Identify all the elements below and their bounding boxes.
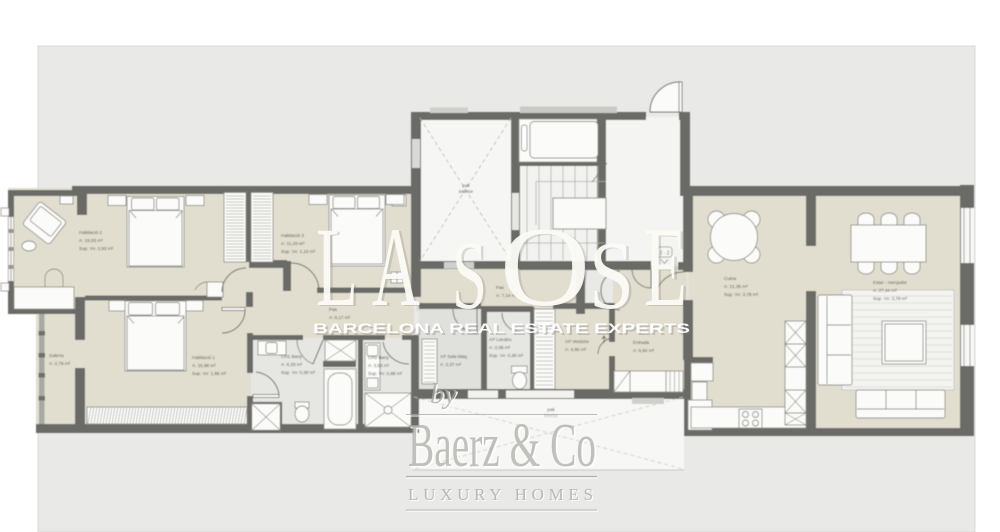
svg-text:Sup. Vv: 0,30 m²: Sup. Vv: 0,30 m²: [281, 370, 316, 375]
svg-text:Sup. Vv: 0,30 m²: Sup. Vv: 0,30 m²: [489, 353, 524, 358]
svg-text:Sup. Vv: 1,10 m²: Sup. Vv: 1,10 m²: [281, 249, 316, 254]
svg-text:A: 19,03 m²: A: 19,03 m²: [79, 238, 103, 243]
svg-text:A: 21,35 m²: A: 21,35 m²: [724, 284, 748, 289]
svg-text:A: 4,90 m²: A: 4,90 m²: [565, 347, 587, 352]
svg-text:S: S: [452, 222, 487, 329]
svg-text:Cuina: Cuina: [724, 276, 736, 281]
svg-text:pati: pati: [462, 183, 469, 188]
svg-text:Habitació 2: Habitació 2: [79, 230, 102, 235]
svg-text:Sup. Vv: 1,86 m²: Sup. Vv: 1,86 m²: [192, 371, 227, 376]
svg-text:A: 2,37 m²: A: 2,37 m²: [440, 362, 462, 367]
svg-text:A: 3,53 m²: A: 3,53 m²: [368, 363, 390, 368]
svg-text:O: O: [500, 205, 590, 330]
svg-text:A: 6,33 m²: A: 6,33 m²: [281, 362, 303, 367]
svg-text:Sup. Vv: 2,93 m²: Sup. Vv: 2,93 m²: [79, 246, 114, 251]
svg-text:A: 2,79 m²: A: 2,79 m²: [49, 361, 71, 366]
svg-text:A: 15,98 m²: A: 15,98 m²: [192, 363, 216, 368]
svg-text:A: 27,44 m²: A: 27,44 m²: [873, 288, 897, 293]
svg-text:interior: interior: [459, 189, 474, 194]
svg-text:A: 2,06 m²: A: 2,06 m²: [489, 345, 511, 350]
svg-text:Habitació 1: Habitació 1: [192, 355, 215, 360]
svg-text:E: E: [644, 205, 687, 330]
svg-text:A: A: [372, 205, 420, 330]
svg-text:Sup. Vv: 3,78 m²: Sup. Vv: 3,78 m²: [724, 292, 759, 297]
svg-text:Baerz & Co: Baerz & Co: [408, 412, 596, 480]
svg-text:A: 11,20 m²: A: 11,20 m²: [281, 241, 305, 246]
svg-text:BARCELONA REAL ESTATE EXPERTS: BARCELONA REAL ESTATE EXPERTS: [313, 320, 690, 336]
svg-text:Habitació 3: Habitació 3: [281, 233, 304, 238]
svg-text:CH1 Bany: CH1 Bany: [281, 354, 303, 359]
svg-text:Sup. Vv: 0,88 m²: Sup. Vv: 0,88 m²: [368, 371, 403, 376]
svg-text:L: L: [316, 205, 358, 330]
svg-text:CH2 Bany: CH2 Bany: [368, 355, 390, 360]
svg-text:S: S: [589, 222, 634, 329]
svg-text:AP Sala Maq.: AP Sala Maq.: [440, 354, 468, 359]
svg-text:AP Vestidor: AP Vestidor: [565, 339, 589, 344]
svg-text:A: 6,84 m²: A: 6,84 m²: [633, 348, 655, 353]
svg-text:Galeria: Galeria: [49, 353, 64, 358]
svg-text:Sup. Vv: 3,78 m²: Sup. Vv: 3,78 m²: [873, 296, 908, 301]
svg-text:Estar - menjador: Estar - menjador: [873, 280, 907, 285]
svg-text:Entrada: Entrada: [633, 340, 650, 345]
svg-text:by: by: [430, 379, 457, 410]
